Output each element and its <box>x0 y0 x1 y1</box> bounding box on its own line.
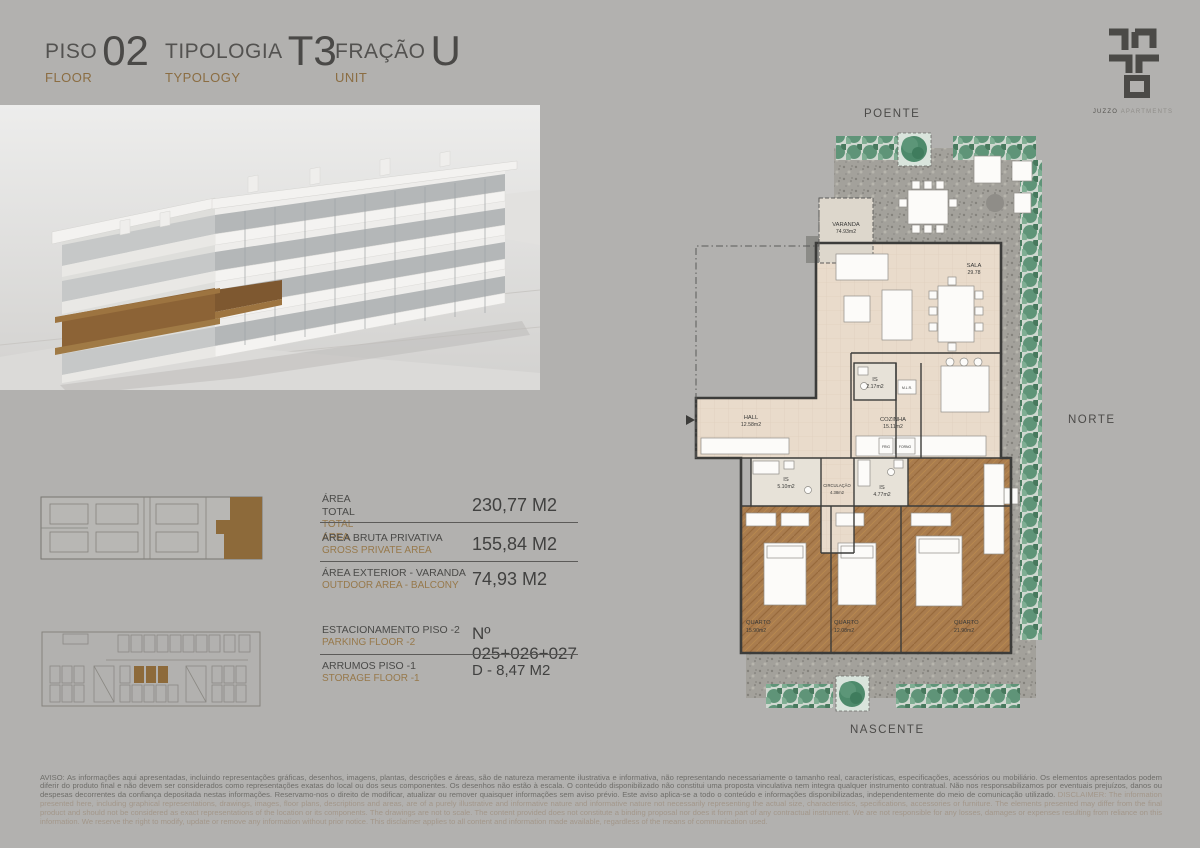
unit-field: FRAÇÃO U UNIT <box>335 30 461 85</box>
svg-text:74.93m2: 74.93m2 <box>836 229 856 235</box>
floor-value: 02 <box>102 30 149 72</box>
svg-text:21.90m2: 21.90m2 <box>954 628 974 634</box>
svg-text:IS: IS <box>872 377 878 383</box>
typology-field: TIPOLOGIA T3 TYPOLOGY <box>165 30 337 85</box>
gross-area-value: 155,84 M2 <box>472 534 557 555</box>
gross-area-label-pt: ÁREA BRUTA PRIVATIVA <box>322 532 443 545</box>
brand-name: JUZZO APARTMENTS <box>1088 109 1178 115</box>
tree-planter-bottom <box>836 676 869 711</box>
parking-label-en: PARKING FLOOR -2 <box>322 637 460 650</box>
table-row: ARRUMOS PISO -1 STORAGE FLOOR -1 <box>322 660 420 686</box>
floor-plan: POENTE NORTE NASCENTE <box>686 128 1062 728</box>
svg-text:VARANDA: VARANDA <box>832 222 860 228</box>
outdoor-area-value: 74,93 M2 <box>472 569 547 590</box>
svg-text:IS: IS <box>879 485 885 491</box>
keyplan-parking <box>38 622 266 714</box>
keyplan-floor-location <box>38 492 266 566</box>
svg-text:M.L.R.: M.L.R. <box>902 386 912 390</box>
table-row: ÁREA EXTERIOR - VARANDA OUTDOOR AREA - B… <box>322 567 466 593</box>
svg-text:4.38m2: 4.38m2 <box>830 490 845 495</box>
compass-west-label: POENTE <box>864 108 920 120</box>
storage-value: D - 8,47 M2 <box>472 662 550 679</box>
brochure-page: PISO 02 FLOOR TIPOLOGIA T3 TYPOLOGY FRAÇ… <box>0 0 1200 848</box>
svg-text:QUARTO: QUARTO <box>834 620 859 626</box>
svg-text:12.58m2: 12.58m2 <box>741 422 761 428</box>
tree-planter-top <box>898 133 931 166</box>
gross-area-label-en: GROSS PRIVATE AREA <box>322 545 443 558</box>
svg-text:FRIG: FRIG <box>882 445 890 449</box>
typology-value: T3 <box>288 30 337 72</box>
table-row: ESTACIONAMENTO PISO -2 PARKING FLOOR -2 <box>322 624 460 650</box>
divider <box>320 561 578 562</box>
svg-text:5.10m2: 5.10m2 <box>777 484 794 490</box>
svg-text:15.90m2: 15.90m2 <box>746 628 766 634</box>
storage-label-pt: ARRUMOS PISO -1 <box>322 660 420 673</box>
svg-text:QUARTO: QUARTO <box>746 620 771 626</box>
outdoor-area-label-pt: ÁREA EXTERIOR - VARANDA <box>322 567 466 580</box>
typology-label-pt: TIPOLOGIA <box>165 30 283 64</box>
svg-text:CIRCULAÇÃO: CIRCULAÇÃO <box>823 483 851 488</box>
parking-value: Nº 025+026+027 <box>472 624 578 664</box>
svg-text:29.78: 29.78 <box>968 270 981 276</box>
legal-disclaimer: AVISO: As informações aqui apresentadas,… <box>40 774 1162 827</box>
brand-logo-icon <box>1100 26 1166 98</box>
svg-text:15.11m2: 15.11m2 <box>883 424 903 430</box>
details-table: ESTACIONAMENTO PISO -2 PARKING FLOOR -2 … <box>320 612 578 702</box>
storage-label-en: STORAGE FLOOR -1 <box>322 673 420 686</box>
compass-north-label: NORTE <box>1068 414 1116 426</box>
areas-table: ÁREA TOTAL TOTAL AREA 230,77 M2 ÁREA BRU… <box>320 485 578 605</box>
keyplan-parking-highlighted-spaces <box>134 666 168 683</box>
table-row: ÁREA BRUTA PRIVATIVA GROSS PRIVATE AREA <box>322 532 443 558</box>
floor-label-pt: PISO <box>45 30 97 64</box>
svg-text:IS: IS <box>783 477 789 483</box>
disclaimer-pt: AVISO: As informações aqui apresentadas,… <box>40 773 1162 800</box>
svg-text:2.17m2: 2.17m2 <box>866 384 883 390</box>
svg-text:12.08m2: 12.08m2 <box>834 628 854 634</box>
unit-label-pt: FRAÇÃO <box>335 30 426 64</box>
area-total-label-pt: ÁREA TOTAL <box>322 493 380 519</box>
area-total-value: 230,77 M2 <box>472 495 557 516</box>
building-render-3d <box>0 105 540 390</box>
svg-text:HALL: HALL <box>744 415 759 421</box>
outdoor-area-label-en: OUTDOOR AREA - BALCONY <box>322 580 466 593</box>
divider <box>320 654 578 655</box>
unit-value: U <box>431 30 461 72</box>
entrance-arrow-icon <box>686 415 695 425</box>
svg-text:COZINHA: COZINHA <box>880 417 906 423</box>
svg-text:QUARTO: QUARTO <box>954 620 979 626</box>
terrace-round-table <box>986 194 1004 212</box>
divider <box>320 522 578 523</box>
svg-text:SALA: SALA <box>967 263 982 269</box>
svg-text:FORNO: FORNO <box>899 445 912 449</box>
svg-text:4.77m2: 4.77m2 <box>873 492 890 498</box>
floor-field: PISO 02 FLOOR <box>45 30 149 85</box>
compass-east-label: NASCENTE <box>850 724 925 736</box>
parking-label-pt: ESTACIONAMENTO PISO -2 <box>322 624 460 637</box>
brand-logo: JUZZO APARTMENTS <box>1088 26 1178 115</box>
